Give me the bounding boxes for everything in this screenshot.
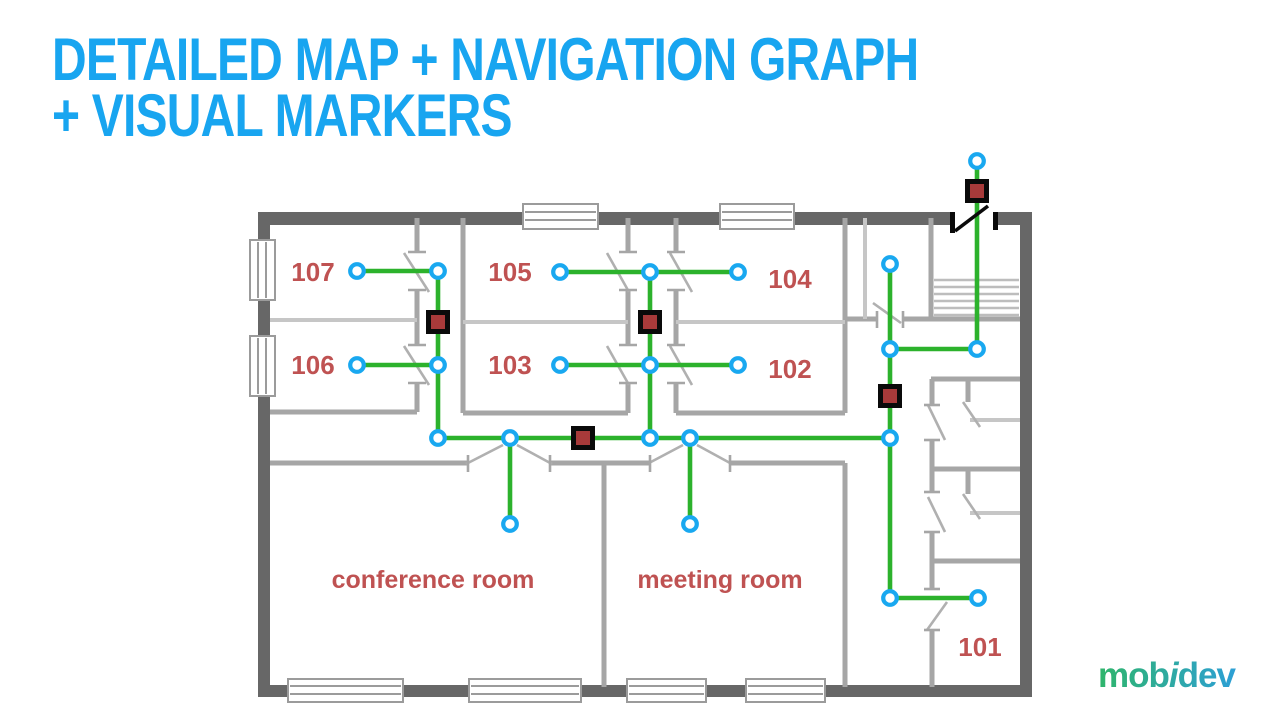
room-label-conference-room: conference room (332, 566, 535, 594)
outer-walls (258, 212, 1032, 697)
nav-node-room-106 (350, 358, 364, 372)
nav-node-stairs-junction (883, 342, 897, 356)
nav-node-vestibule (883, 257, 897, 271)
nav-node-room-107 (350, 264, 364, 278)
slide-canvas: DETAILED MAP + NAVIGATION GRAPH+ VISUAL … (0, 0, 1280, 720)
nav-node-corridor-mid (643, 431, 657, 445)
room-label-106: 106 (291, 350, 334, 380)
nav-node-room-104 (731, 265, 745, 279)
nav-node-room-101-door (971, 591, 985, 605)
nav-node-room-102 (731, 358, 745, 372)
nav-node-room-103 (553, 358, 567, 372)
visual-marker-3 (571, 426, 595, 450)
room-label-104: 104 (768, 264, 812, 294)
visual-marker-5 (965, 179, 989, 203)
room-label-102: 102 (768, 354, 811, 384)
nav-node-meeting-door (683, 431, 697, 445)
room-label-107: 107 (291, 257, 334, 287)
nav-edges-layer (357, 161, 978, 598)
nav-node-exit (970, 154, 984, 168)
logo-part-post: dev (1178, 656, 1237, 695)
nav-node-conference-door (503, 431, 517, 445)
visual-marker-1 (426, 310, 450, 334)
nav-node-stairs-bottom (970, 342, 984, 356)
nav-node-door-106 (431, 358, 445, 372)
nav-node-door-103 (643, 358, 657, 372)
nav-node-meeting-inner (683, 517, 697, 531)
visual-marker-4 (878, 384, 902, 408)
logo-part-pre: mob (1098, 656, 1169, 695)
room-label-101: 101 (958, 632, 1001, 662)
visual-marker-2 (638, 310, 662, 334)
floorplan-map: 107106105103104102101conference roommeet… (0, 0, 1280, 720)
nav-node-door-107 (431, 264, 445, 278)
interior-walls (270, 218, 1020, 687)
exit-door (950, 206, 998, 233)
mobidev-logo: mobidev (1092, 653, 1252, 704)
nav-node-hall-bottom (883, 591, 897, 605)
nav-node-corridor-left (431, 431, 445, 445)
nav-node-door-105 (643, 265, 657, 279)
room-label-meeting-room: meeting room (637, 566, 802, 594)
room-label-103: 103 (488, 350, 531, 380)
nav-node-corridor-right (883, 431, 897, 445)
nav-node-conference-inner (503, 517, 517, 531)
nav-node-room-105 (553, 265, 567, 279)
mobidev-logo-text: mobidev (1098, 656, 1236, 695)
room-label-105: 105 (488, 257, 531, 287)
